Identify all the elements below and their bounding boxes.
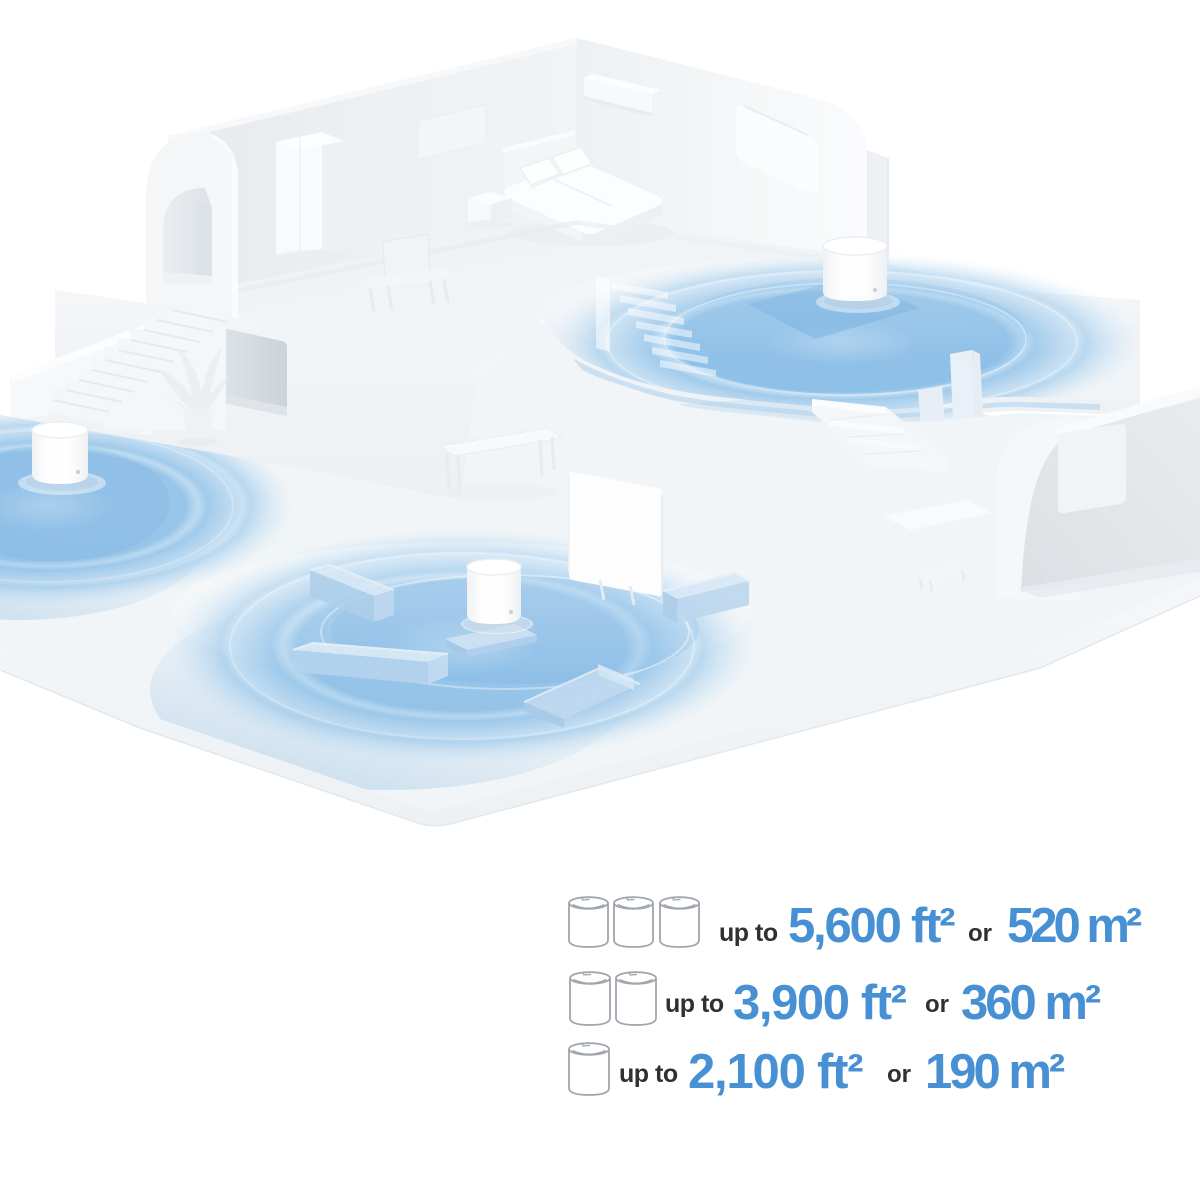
svg-text:up to: up to [665, 990, 724, 1018]
svg-text:2,100 ft²: 2,100 ft² [688, 1045, 863, 1099]
svg-text:190 m²: 190 m² [925, 1045, 1065, 1099]
svg-text:520 m²: 520 m² [1007, 899, 1142, 953]
svg-text:up to: up to [719, 919, 778, 947]
svg-text:360 m²: 360 m² [961, 976, 1101, 1030]
svg-text:or: or [968, 920, 992, 947]
svg-text:or: or [887, 1061, 911, 1088]
svg-text:3,900 ft²: 3,900 ft² [733, 976, 907, 1030]
svg-text:up to: up to [619, 1060, 678, 1088]
svg-text:or: or [925, 991, 949, 1018]
svg-text:5,600 ft²: 5,600 ft² [788, 899, 955, 953]
